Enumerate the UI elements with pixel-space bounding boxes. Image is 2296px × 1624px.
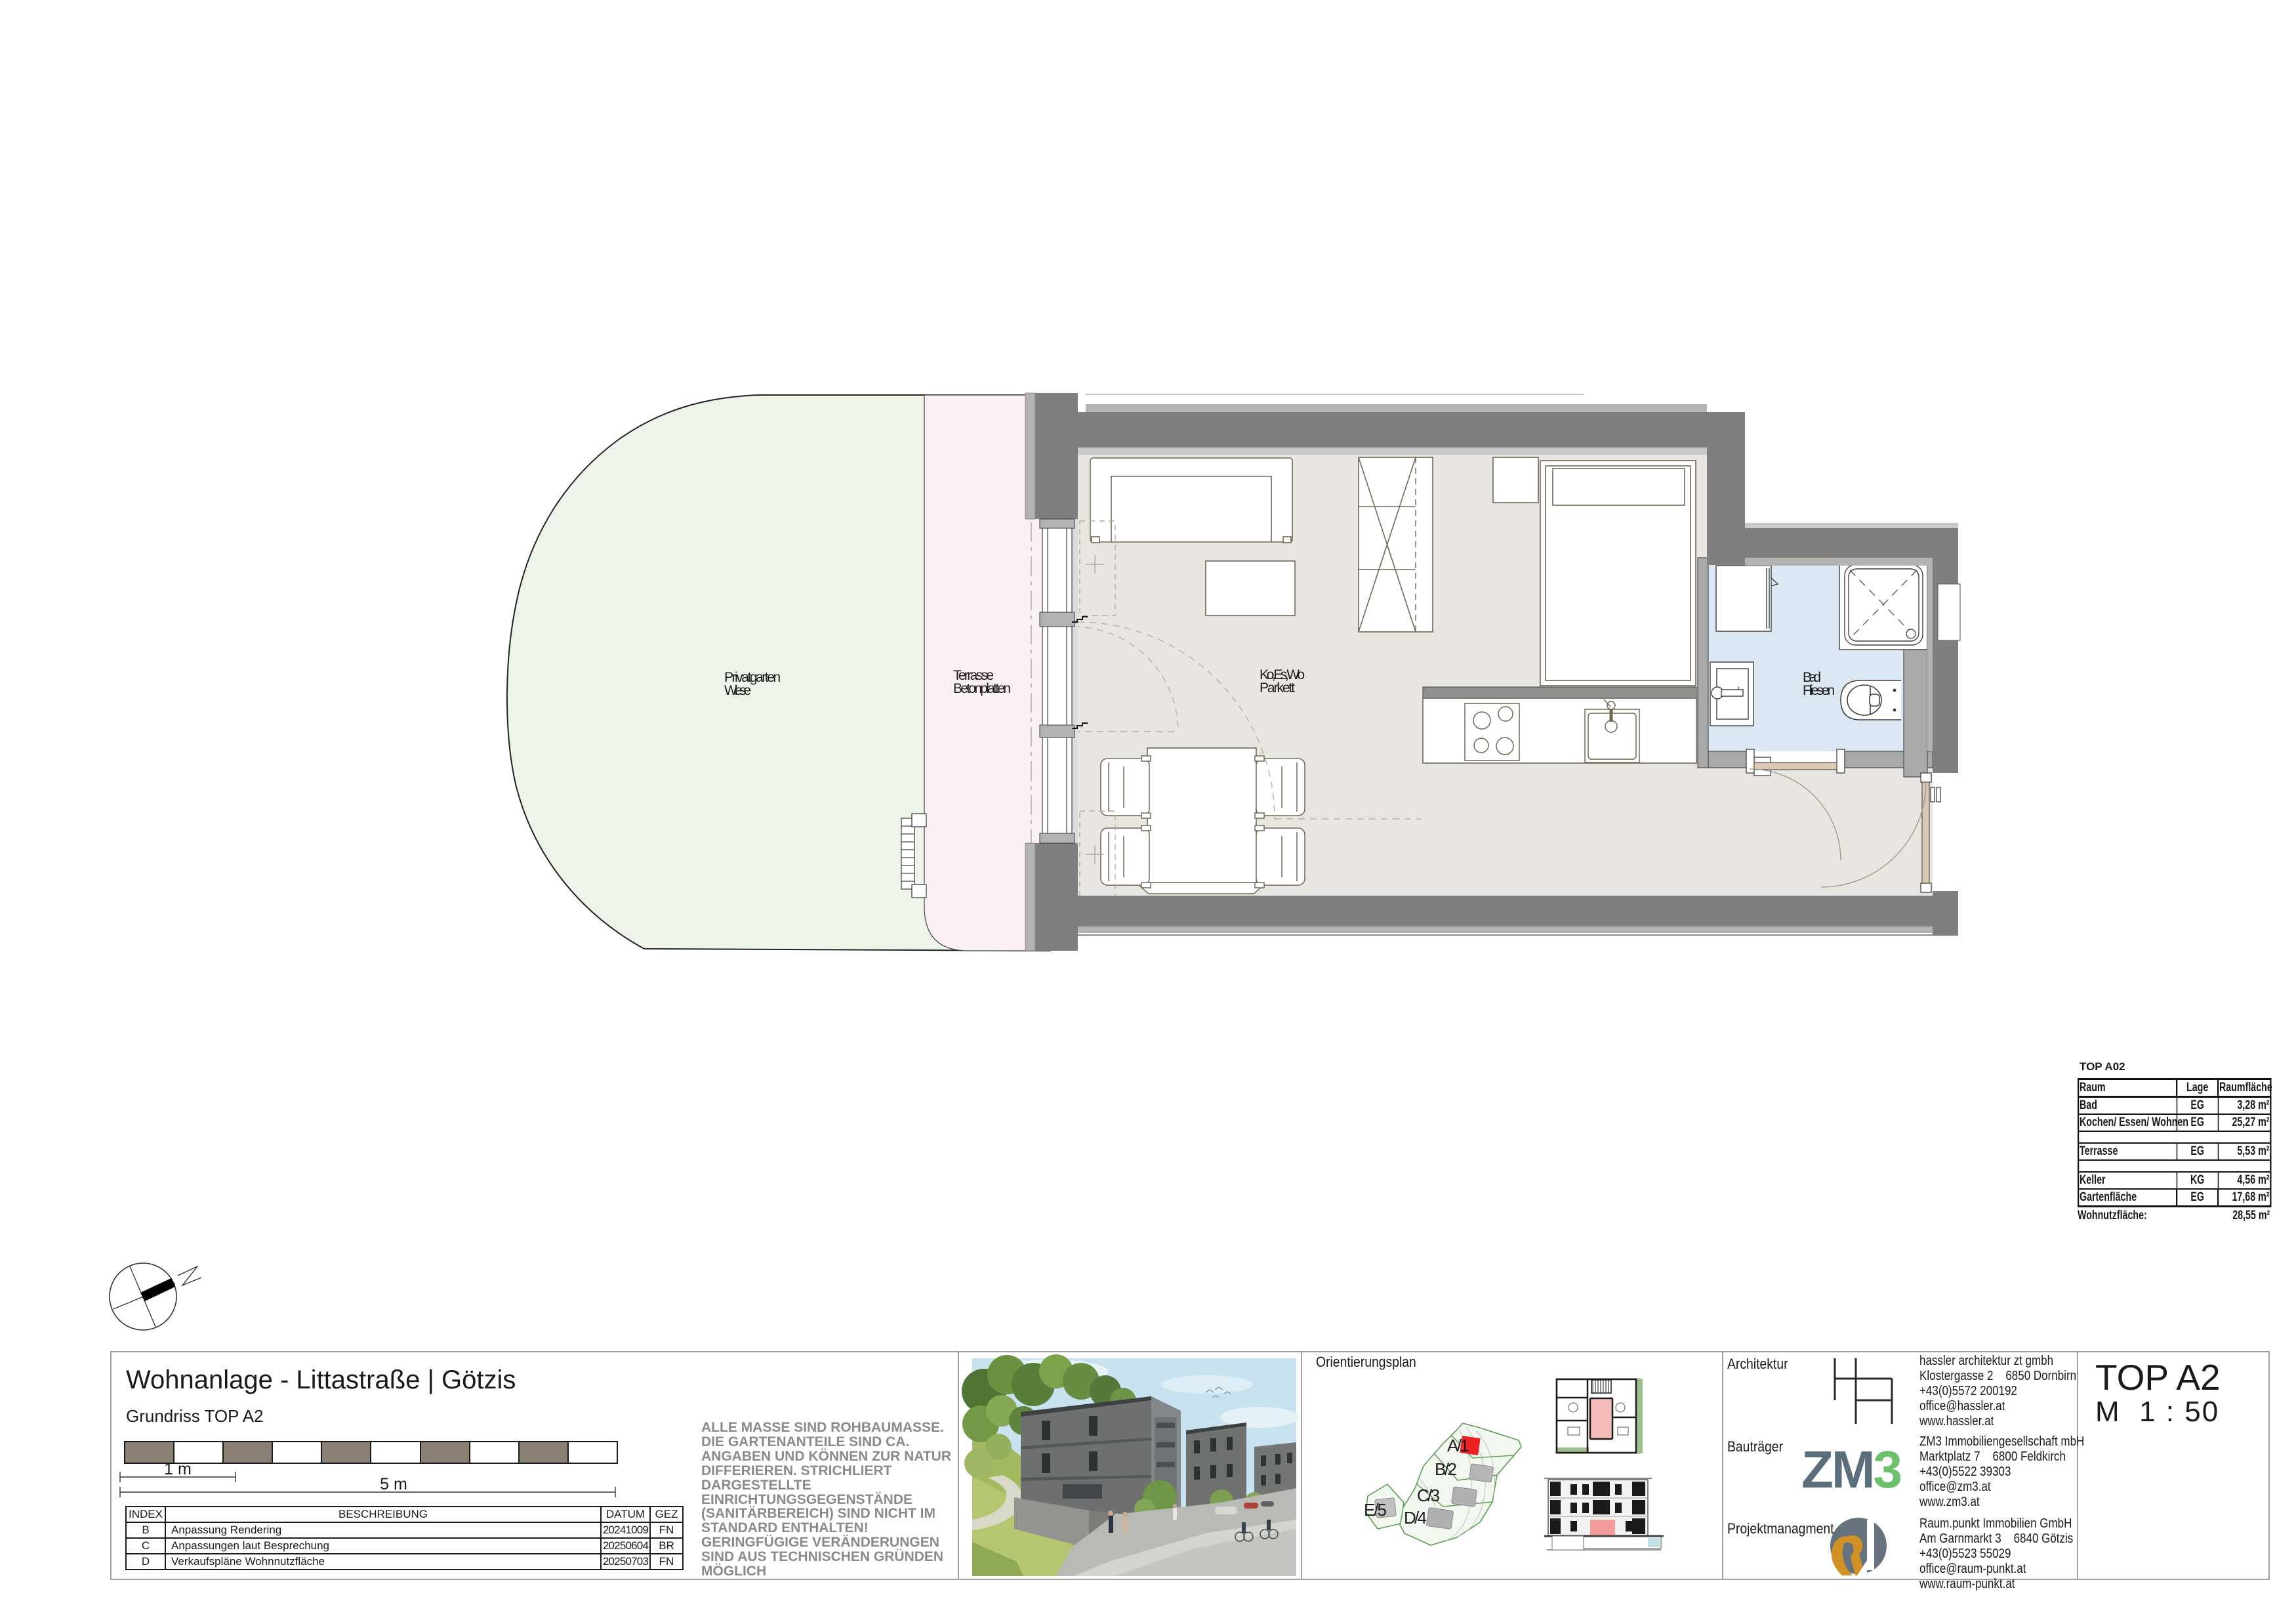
svg-text:Parkett: Parkett bbox=[1260, 680, 1295, 696]
svg-text:Betonplatten: Betonplatten bbox=[953, 681, 1011, 696]
svg-text:Fliesen: Fliesen bbox=[1803, 683, 1835, 698]
svg-text:Wiese: Wiese bbox=[724, 683, 751, 698]
